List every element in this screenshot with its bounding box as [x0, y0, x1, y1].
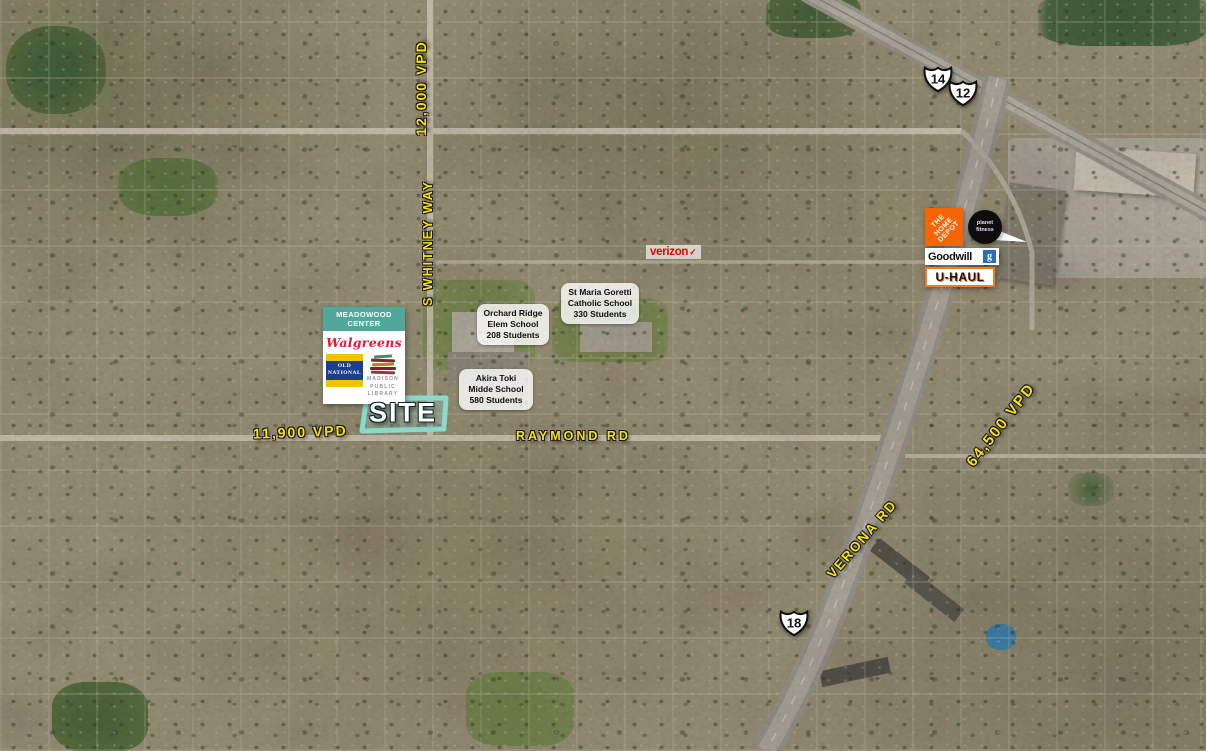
site-label: SITE [369, 398, 437, 429]
uhaul-logo: U-HAUL [925, 267, 995, 287]
school-enrollment: 208 Students [482, 330, 544, 341]
route-shield-18: 18 [777, 608, 811, 638]
planet-fitness-text: fitness [976, 227, 994, 234]
school-name: Orchard Ridge [482, 308, 544, 319]
old-national-text: NATIONAL [326, 370, 363, 377]
school-name: Akira Toki [464, 373, 528, 384]
meadowood-title: MEADOWOOD CENTER [323, 307, 405, 331]
verizon-check-icon: ✓ [689, 247, 697, 258]
traffic-count-raymond: 11,900 VPD [253, 422, 348, 441]
school-type: Elem School [482, 319, 544, 330]
library-books-icon [364, 355, 402, 374]
goodwill-smile-icon: g [983, 250, 996, 263]
annotation-shapes [0, 0, 1206, 751]
school-type: Catholic School [566, 298, 634, 309]
goodwill-logo: Goodwill g [925, 248, 999, 265]
meadowood-center-card: MEADOWOOD CENTER Walgreens OLD NATIONAL [323, 307, 405, 404]
school-name: St Maria Goretti [566, 287, 634, 298]
school-type: Midde School [464, 384, 528, 395]
svg-text:14: 14 [931, 72, 946, 87]
madison-public-library-logo: MADISON PUBLIC LIBRARY [364, 354, 402, 399]
verizon-text: verizon [650, 246, 688, 258]
school-enrollment: 330 Students [566, 309, 634, 320]
svg-text:12: 12 [956, 86, 971, 101]
route-shield-12: 12 [946, 78, 980, 108]
goodwill-text: Goodwill [928, 251, 983, 263]
home-depot-logo: THE HOME DEPOT [925, 208, 963, 246]
planet-fitness-text: planet [977, 220, 993, 227]
road-label-raymond: RAYMOND RD [516, 429, 631, 443]
school-label-st-maria-goretti: St Maria Goretti Catholic School 330 Stu… [561, 283, 639, 324]
verizon-logo: verizon ✓ [646, 245, 701, 259]
library-text: MADISON [364, 376, 402, 384]
old-national-gold-band [326, 380, 363, 387]
svg-text:18: 18 [787, 616, 802, 631]
school-enrollment: 580 Students [464, 395, 528, 406]
traffic-count-whitney: 12,000 VPD [413, 33, 429, 143]
school-label-akira-toki: Akira Toki Midde School 580 Students [459, 369, 533, 410]
planet-fitness-logo: planet fitness [968, 210, 1002, 244]
road-label-whitney: S WHITNEY WAY [421, 178, 435, 308]
old-national-gold-band [326, 354, 363, 361]
library-text: PUBLIC [364, 384, 402, 392]
walgreens-logo: Walgreens [326, 335, 402, 350]
retail-logo-cluster: THE HOME DEPOT planet fitness Goodwill g… [925, 208, 1003, 287]
old-national-logo: OLD NATIONAL [326, 354, 363, 387]
school-label-orchard-ridge: Orchard Ridge Elem School 208 Students [477, 304, 549, 345]
old-national-text: OLD [326, 363, 363, 370]
aerial-map: 12,000 VPD S WHITNEY WAY 11,900 VPD RAYM… [0, 0, 1206, 751]
